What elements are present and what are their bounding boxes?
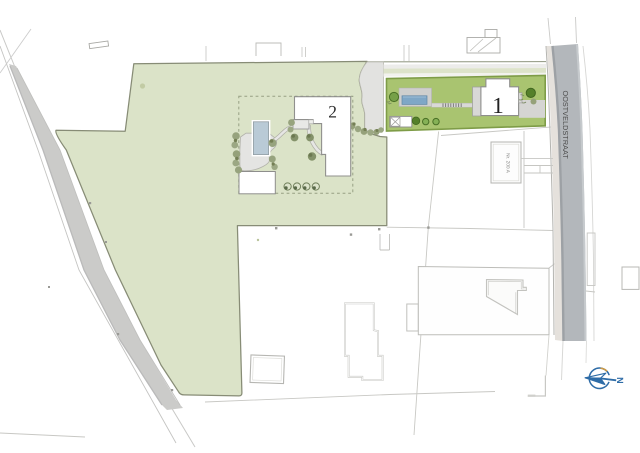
svg-text:1: 1 bbox=[492, 93, 504, 118]
svg-text:2: 2 bbox=[328, 102, 337, 122]
svg-text:Nr. 200 A: Nr. 200 A bbox=[504, 153, 510, 174]
svg-text:OOSTVELDSTRAAT: OOSTVELDSTRAAT bbox=[561, 91, 570, 160]
svg-text:N: N bbox=[615, 377, 625, 384]
